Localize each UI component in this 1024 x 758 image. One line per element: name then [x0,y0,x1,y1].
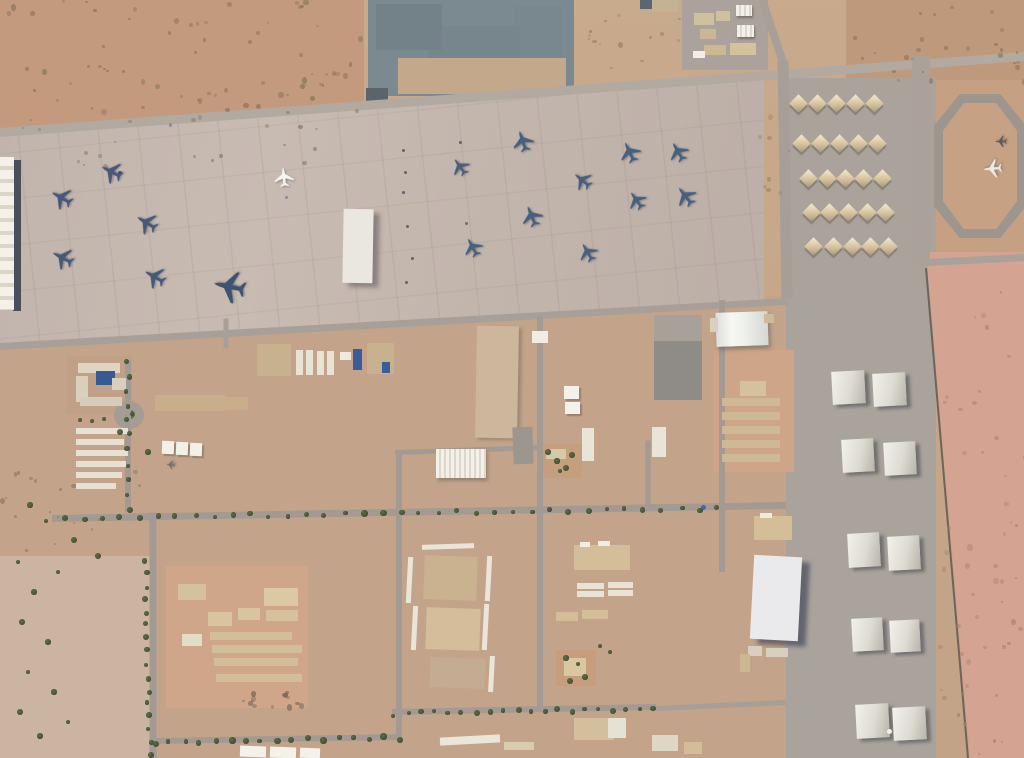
tree [247,511,252,516]
scrub-vegetation [1015,65,1020,70]
building-quonset-a [736,5,752,16]
scrub-vegetation [788,150,790,152]
scrub-vegetation [678,18,681,20]
building-west-hangar-row [0,157,14,310]
scrub-vegetation [77,160,80,164]
aircraft-icon [166,460,177,471]
tree [554,458,559,463]
scrub-vegetation [248,701,253,705]
tree [146,712,152,718]
building-east-row-5 [722,454,780,462]
tree [153,741,159,747]
building-solar-panel-b [382,362,390,373]
building-sw-row-4 [216,674,302,682]
building-sw-white-a [240,746,266,758]
vehicle-dot [411,257,414,260]
building-sw-row-2 [212,645,302,653]
scrub-vegetation [943,401,946,404]
building-curved-roof-hangar [715,311,768,347]
terrain-water-blotch-c [514,6,562,64]
scrub-vegetation [243,103,248,108]
tree [17,709,23,715]
scrub-vegetation [938,645,943,650]
building-admin-building [574,545,630,570]
building-tan-office [754,516,792,540]
building-sw-building-b [208,612,232,626]
building-north-shed-f [730,43,756,55]
tree [305,735,311,741]
scrub-vegetation [768,114,773,120]
scrub-vegetation [961,692,964,694]
scrub-vegetation [778,191,782,195]
tree [680,506,685,511]
scrub-vegetation [981,451,984,455]
scrub-vegetation [214,94,216,97]
building-barracks-row-5 [76,472,122,478]
building-gray-annex [512,427,533,465]
tree [124,446,130,452]
scrub-vegetation [1000,28,1004,32]
tree [196,740,202,746]
building-hangar-annex-a [764,314,774,323]
building-north-shed-e [704,45,726,55]
building-sw-building-a [178,584,206,600]
tree [125,493,129,497]
building-canopy-row-c [608,582,633,588]
scrub-vegetation [155,84,160,90]
tents-east-road [912,56,930,266]
scrub-vegetation [87,65,90,68]
tree [351,735,355,739]
west-south-road [150,512,157,758]
tree [126,477,131,482]
building-storage-warehouse-3 [429,657,485,689]
scrub-vegetation [225,108,230,112]
vehicle-dot [402,149,405,152]
scrub-vegetation [1007,642,1011,645]
building-tech-block [257,344,291,376]
scrub-vegetation [194,51,197,54]
tree [214,738,219,743]
scrub-vegetation [962,451,967,455]
tree [142,596,148,602]
scrub-vegetation [944,46,948,49]
building-hq-block-c [112,378,126,390]
scrub-vegetation [102,45,105,48]
tree [124,417,129,422]
building-admin-roofbit-a [580,542,590,547]
satellite-image-airbase [0,0,1024,758]
building-north-shed-g [693,51,705,58]
tree [126,404,130,408]
building-tech-strip-3 [317,351,324,375]
tree [144,570,150,576]
building-barracks-row-3 [76,450,128,456]
building-long-tan-annex [223,397,248,410]
aircraft-shelter [841,438,875,473]
tree [145,700,149,704]
tree [37,733,42,738]
tree [146,727,150,731]
tree [586,508,592,514]
scrub-vegetation [640,60,643,63]
tree [286,514,290,518]
aircraft-shelter [851,617,884,652]
apron-stub-road [224,318,229,348]
scrub-vegetation [950,6,954,10]
building-north-shed-b [694,13,714,25]
scrub-vegetation [316,25,319,27]
building-east-row-4 [722,440,780,448]
scrub-vegetation [256,31,259,35]
scrub-vegetation [978,390,981,393]
tree [501,708,505,712]
tree [569,452,575,458]
tree [565,509,571,515]
vehicle-dot [887,729,892,734]
building-sw-building-c [238,608,260,620]
scrub-vegetation [141,79,145,84]
scrub-vegetation [211,159,214,161]
scrub-vegetation [592,40,597,43]
scrub-vegetation [767,177,772,182]
aircraft-shelter [892,706,927,741]
scrub-vegetation [203,38,206,41]
building-white-tent-f [532,331,548,343]
tree [231,512,237,518]
building-storage-warehouse-2 [425,607,480,651]
building-quonset-b [737,25,754,37]
scrub-vegetation [303,0,308,4]
scrub-vegetation [589,30,592,33]
building-hq-block-d [80,397,122,406]
tree [380,733,386,739]
building-tech-strip-1 [296,350,303,375]
scrub-vegetation [29,477,33,480]
scrub-vegetation [315,128,317,130]
scrub-vegetation [7,11,10,15]
scrub-vegetation [343,73,348,79]
scrub-vegetation [286,94,289,96]
scrub-vegetation [42,69,47,75]
building-storage-warehouse-1 [423,555,478,601]
scrub-vegetation [299,53,303,58]
building-east-row-2 [722,412,780,420]
scrub-vegetation [649,36,653,39]
scrub-vegetation [919,12,921,14]
building-white-strip-f [652,427,666,457]
scrub-vegetation [302,77,307,84]
scrub-vegetation [128,120,132,123]
scrub-vegetation [604,20,607,23]
tree [582,674,588,680]
scrub-vegetation [972,401,977,405]
tree [320,737,326,743]
scrub-vegetation [57,516,59,518]
building-tan-office-roofbit [760,513,772,518]
scrub-vegetation [30,119,32,121]
aircraft-shelter [847,532,881,568]
scrub-vegetation [5,497,7,499]
scrub-vegetation [54,543,57,545]
building-south-block-b [608,718,626,738]
building-long-tan-building [155,395,225,411]
scrub-vegetation [311,73,314,75]
building-barracks-row-6 [76,483,116,489]
vehicle-dot [406,225,409,228]
tree [27,502,32,507]
tree [598,644,602,648]
building-barracks-row-4 [76,461,126,467]
scrub-vegetation [995,694,998,697]
tree [95,553,101,559]
scrub-vegetation [897,79,899,81]
scrub-vegetation [599,43,601,45]
scrub-vegetation [1011,619,1016,625]
building-small-block-b [582,610,608,619]
terrain-water-blotch-b [428,26,520,62]
tree [145,449,150,454]
building-south-block-c [652,735,678,751]
tree [117,429,123,435]
tree [148,752,154,758]
building-south-strip-b [504,742,534,750]
scrub-vegetation [588,38,590,40]
building-white-tent-c [190,443,202,456]
tree [26,670,30,674]
tree [516,707,522,713]
scrub-vegetation [14,515,16,518]
scrub-vegetation [967,544,972,550]
scrub-vegetation [174,18,179,24]
scrub-vegetation [17,471,20,474]
scrub-vegetation [916,48,921,52]
building-white-tower-building [342,209,373,284]
aircraft-shelter [883,441,917,476]
tree [137,515,143,521]
vehicle-dot [459,141,462,144]
building-east-row-1 [722,398,780,406]
building-small-block-a [556,612,578,621]
building-barracks-row-2 [76,439,124,445]
building-sw-building-f [182,634,202,646]
tree [547,507,552,512]
scrub-vegetation [1018,627,1023,631]
building-sw-building-e [266,610,298,621]
tree [623,707,628,712]
building-tech-strip-4 [327,351,334,375]
aircraft-icon [210,266,253,309]
building-warehouse-dark-top [654,315,702,341]
building-canopy-row-b [577,591,604,597]
scrub-vegetation [83,164,85,166]
building-small-shed-b [766,648,788,657]
building-white-tent-a [162,441,174,454]
tree [127,507,133,513]
tree [45,639,51,645]
aircraft-icon [995,135,1008,148]
tree [82,517,88,523]
building-admin-roofbit-b [598,541,610,546]
building-white-hangar [436,449,486,478]
scrub-vegetation [358,36,363,42]
aircraft-shelter [889,619,921,653]
building-big-white-warehouse [750,555,802,641]
scrub-vegetation [227,2,232,7]
building-east-compound-hub [740,381,766,396]
scrub-vegetation [975,615,979,619]
building-white-tent-d [564,386,579,399]
tree [380,510,386,516]
scrub-vegetation [251,700,253,702]
tree [545,449,551,455]
tree [343,511,348,516]
scrub-vegetation [335,72,339,77]
scrub-vegetation [766,188,771,192]
scrub-vegetation [960,652,964,656]
scrub-vegetation [1002,645,1007,648]
building-north-shed-a [652,0,678,12]
building-north-shed-d [700,29,716,39]
tree [529,709,533,713]
scrub-vegetation [25,549,28,552]
tree [143,634,149,640]
tree [274,738,280,744]
scrub-vegetation [922,71,924,73]
building-tech-strip-2 [306,350,313,375]
building-sw-row-3 [214,658,298,666]
scrub-vegetation [11,4,16,10]
building-north-shed-c [716,11,730,21]
scrub-vegetation [660,32,664,35]
aircraft-shelter [831,370,866,405]
tree [243,738,249,744]
scrub-vegetation [325,73,328,76]
building-small-shed-a [748,646,762,656]
tree [62,515,68,521]
scrub-vegetation [101,109,106,115]
tree [492,510,496,514]
building-white-tent-b [176,442,188,455]
scrub-vegetation [193,155,195,158]
tree [146,676,151,681]
vehicle-dot [404,171,407,174]
scrub-vegetation [242,700,244,702]
building-east-row-3 [722,426,780,434]
building-sw-building-d [264,588,298,606]
aircraft-shelter [872,372,907,407]
aircraft-icon [272,166,296,190]
tree [51,689,56,694]
tree [127,374,133,380]
aircraft-shelter [887,535,921,571]
scrub-vegetation [93,9,96,13]
tree [488,709,494,715]
tree [543,709,547,713]
scrub-vegetation [256,104,261,109]
tree [361,510,367,516]
scrub-vegetation [998,53,1003,57]
scrub-vegetation [168,31,171,35]
tree [31,589,36,594]
building-hangar-annex-b [710,318,718,332]
scrub-vegetation [169,123,172,127]
scrub-vegetation [963,722,967,727]
scrub-vegetation [278,92,283,98]
scrub-vegetation [911,58,914,60]
aircraft-icon [982,157,1005,180]
scrub-vegetation [207,92,211,95]
building-canopy-row-d [608,590,633,596]
vehicle-dot [402,191,405,194]
scrub-vegetation [302,161,307,165]
scrub-vegetation [990,10,994,14]
scrub-vegetation [944,550,949,555]
tree [337,735,341,739]
tree [530,510,535,515]
scrub-vegetation [994,43,998,46]
mid-vertical-road [646,440,651,509]
scrub-vegetation [904,55,909,59]
scrub-vegetation [33,89,36,92]
vehicle-dot [465,222,468,225]
scrub-vegetation [300,84,304,89]
scrub-vegetation [313,147,317,151]
scrub-vegetation [610,67,613,69]
building-white-strip-e [582,428,594,461]
scrub-vegetation [310,96,315,101]
scrub-vegetation [942,567,945,571]
warehouse-road [396,450,402,740]
scrub-vegetation [69,82,72,85]
tree [130,412,134,416]
building-west-hangar-shadow [13,160,21,311]
building-tech-hut [340,352,351,360]
building-white-tent-e [565,402,580,414]
building-sw-white-c [300,748,320,758]
revetment-interior [943,103,1017,229]
scrub-vegetation [983,646,987,649]
scrub-vegetation [767,136,772,140]
scrub-vegetation [994,436,998,439]
scrub-vegetation [14,472,18,476]
building-warehouse-tall [475,326,519,439]
building-sw-row-1 [210,632,292,640]
vehicle-dot [405,281,408,284]
tree [397,737,403,743]
scrub-vegetation [957,713,960,717]
scrub-vegetation [758,135,762,140]
tree [257,739,261,743]
tree [100,516,105,521]
scrub-vegetation [617,14,621,17]
tree [622,506,626,510]
tree [124,389,129,394]
building-canopy-row-a [577,583,604,589]
building-solar-panel-a [353,349,362,370]
scrub-vegetation [981,313,985,319]
aircraft-shelter [855,703,890,739]
scrub-vegetation [141,106,145,109]
tree [166,739,170,743]
scrub-vegetation [618,42,623,48]
scrub-vegetation [38,128,40,131]
scrub-vegetation [588,34,591,36]
tree [563,655,568,660]
tree [19,619,25,625]
scrub-vegetation [861,57,864,60]
scrub-vegetation [940,689,943,691]
